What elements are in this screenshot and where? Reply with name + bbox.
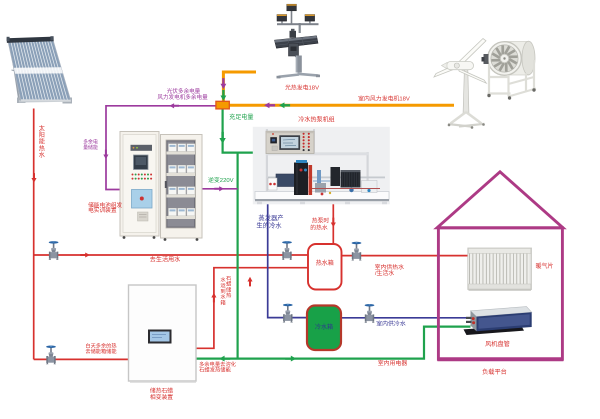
- svg-text:/生活水: /生活水: [375, 269, 394, 277]
- svg-text:充足电量: 充足电量: [229, 113, 253, 121]
- svg-text:室内供冷水: 室内供冷水: [376, 320, 406, 328]
- svg-text:逆变220V: 逆变220V: [208, 176, 234, 184]
- svg-text:量储能: 量储能: [83, 144, 98, 151]
- svg-text:热泵时: 热泵时: [312, 216, 330, 224]
- svg-text:石蜡储热: 石蜡储热: [226, 275, 232, 299]
- svg-text:热水箱: 热水箱: [316, 259, 334, 267]
- svg-text:室内用电器: 室内用电器: [378, 359, 408, 367]
- svg-text:光伏多余电量: 光伏多余电量: [167, 87, 201, 95]
- svg-text:石蜡发热储能: 石蜡发热储能: [199, 366, 231, 374]
- svg-text:室内风力发电机18V: 室内风力发电机18V: [358, 95, 410, 103]
- svg-text:水运到水箱: 水运到水箱: [220, 276, 226, 307]
- svg-text:储热石蜡: 储热石蜡: [150, 387, 173, 395]
- svg-text:的热水: 的热水: [310, 223, 328, 231]
- svg-text:去生活用水: 去生活用水: [150, 255, 180, 263]
- svg-text:蒸发器产: 蒸发器产: [258, 213, 283, 222]
- svg-text:光热发电18V: 光热发电18V: [285, 84, 319, 92]
- svg-text:风机盘管: 风机盘管: [485, 340, 510, 348]
- svg-text:相变装置: 相变装置: [150, 393, 173, 401]
- svg-text:冷水热泵机组: 冷水热泵机组: [298, 115, 335, 123]
- svg-text:暖气片: 暖气片: [535, 262, 553, 270]
- svg-text:多余电量去溶化: 多余电量去溶化: [199, 360, 237, 368]
- svg-text:去储能箱储能: 去储能箱储能: [85, 347, 116, 355]
- svg-text:电实训装置: 电实训装置: [88, 206, 117, 214]
- svg-text:冷水箱: 冷水箱: [315, 323, 333, 331]
- svg-text:生的冷水: 生的冷水: [256, 220, 282, 229]
- svg-text:太阳能热水: 太阳能热水: [39, 125, 45, 159]
- svg-text:负载平台: 负载平台: [482, 368, 507, 376]
- svg-text:风力发电机多余电量: 风力发电机多余电量: [157, 93, 208, 101]
- svg-text:多余电: 多余电: [83, 138, 98, 145]
